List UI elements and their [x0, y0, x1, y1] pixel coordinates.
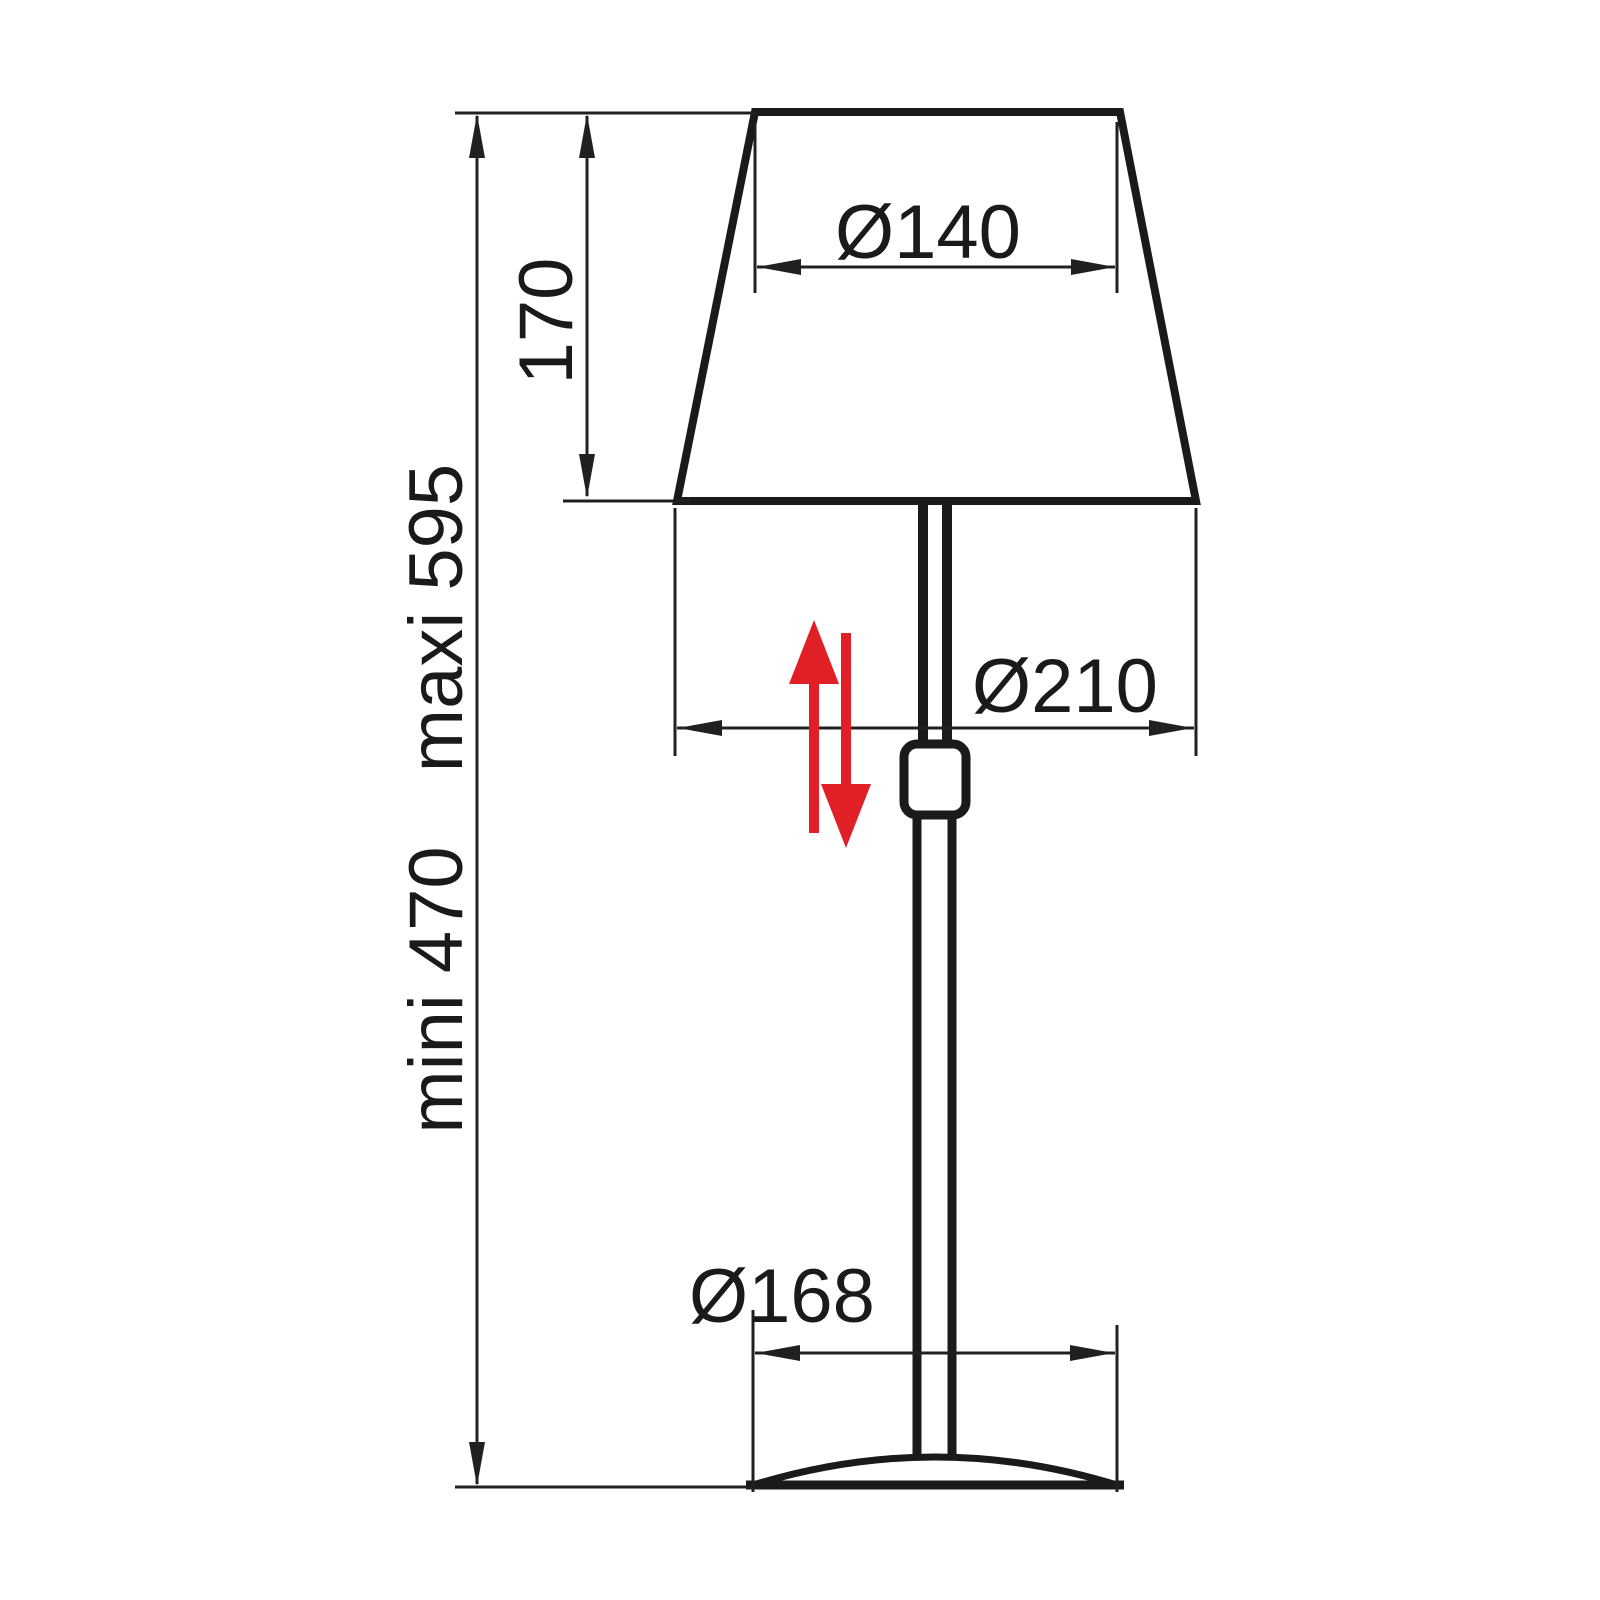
base-diameter-arrow-right-icon: [1070, 1345, 1114, 1361]
height-adjust-indicator: [789, 620, 871, 848]
height-arrow-up-icon: [469, 114, 485, 158]
height-arrow-down-icon: [469, 1442, 485, 1486]
base-diameter-arrow-left-icon: [756, 1345, 800, 1361]
shade-height-arrow-down-icon: [579, 454, 595, 498]
adjustment-knob: [904, 744, 966, 815]
shade-top-diameter-label: Ø140: [835, 190, 1021, 275]
shade-height-label: 170: [504, 258, 589, 385]
adjust-down-arrow-icon: [821, 784, 871, 848]
shade-bottom-diameter-label: Ø210: [972, 644, 1158, 729]
min-height-label: mini 470: [394, 846, 479, 1133]
shade-bottom-diameter-arrow-left-icon: [678, 720, 722, 736]
adjust-up-arrow-icon: [789, 620, 839, 684]
drawing-svg: Ø140 Ø210 Ø168 170 maxi 595 mini 470: [0, 0, 1600, 1600]
lamp-dimension-drawing: Ø140 Ø210 Ø168 170 maxi 595 mini 470: [0, 0, 1600, 1600]
shade-height-arrow-up-icon: [579, 114, 595, 158]
max-height-label: maxi 595: [394, 464, 479, 772]
base-diameter-label: Ø168: [689, 1254, 875, 1339]
